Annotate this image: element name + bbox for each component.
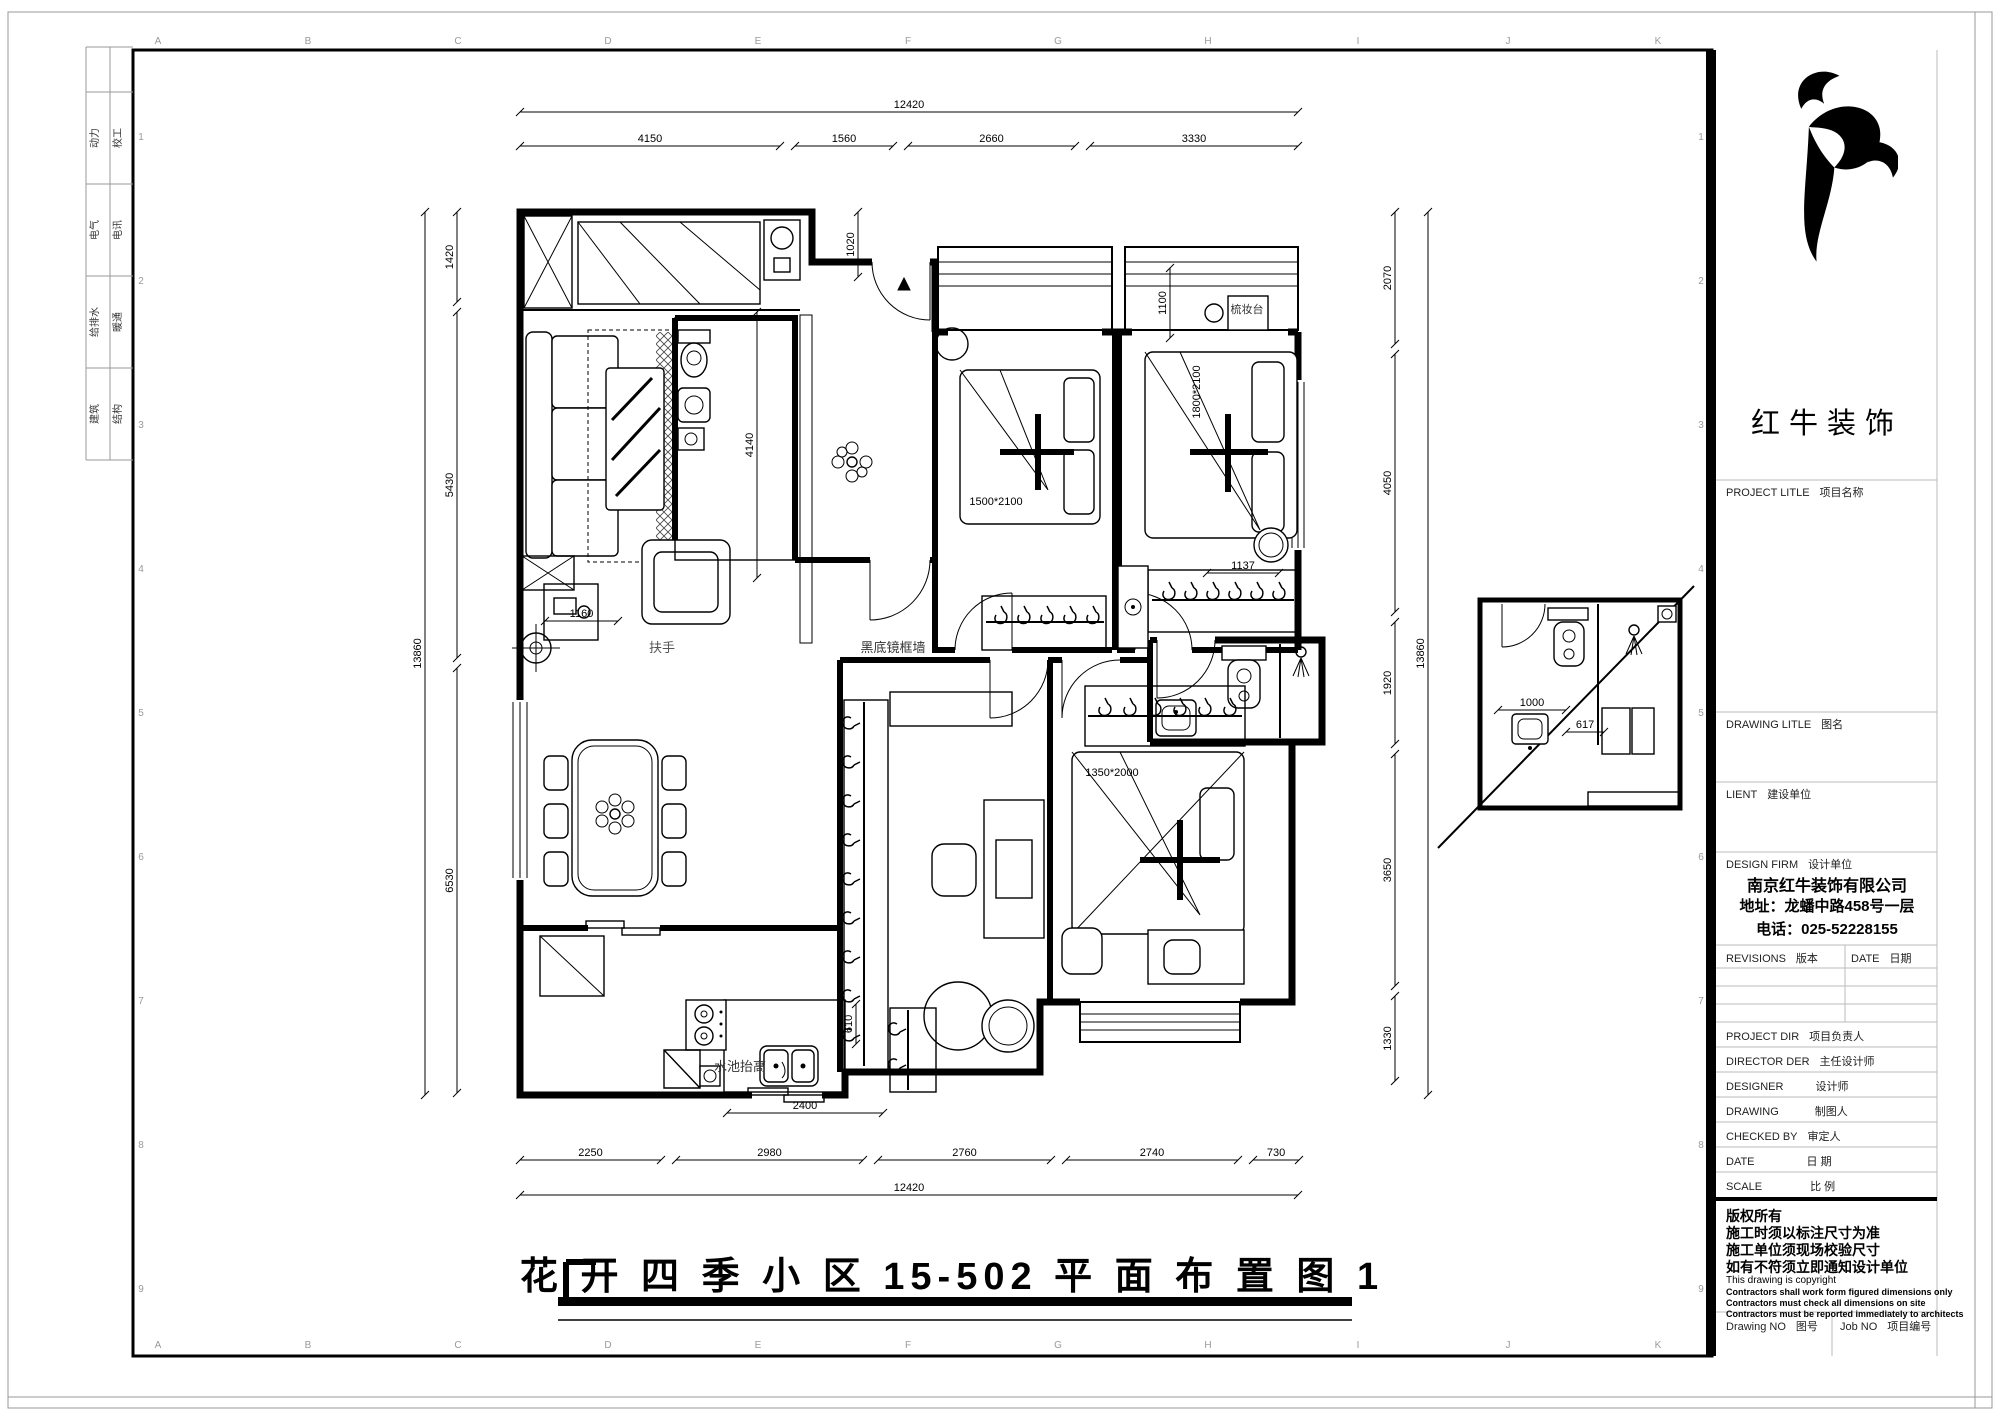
svg-text:B: B xyxy=(305,36,312,47)
round-rug-striped xyxy=(924,982,992,1050)
svg-text:K: K xyxy=(1655,36,1662,47)
coffee-table-mirror xyxy=(606,368,664,510)
svg-text:1137: 1137 xyxy=(1231,560,1255,572)
svg-text:2400: 2400 xyxy=(793,1100,817,1112)
svg-text:1100: 1100 xyxy=(1157,291,1169,315)
toilet-tank xyxy=(1222,646,1266,660)
svg-text:D: D xyxy=(604,1340,611,1351)
svg-text:梳妆台: 梳妆台 xyxy=(1231,302,1264,316)
chair-d1 xyxy=(1062,928,1102,974)
svg-text:1330: 1330 xyxy=(1382,1026,1394,1050)
sheet-frame xyxy=(8,12,1992,1408)
svg-text:12420: 12420 xyxy=(894,99,925,111)
svg-text:6: 6 xyxy=(1698,852,1704,863)
svg-text:K: K xyxy=(1655,1340,1662,1351)
svg-text:2: 2 xyxy=(138,276,144,287)
svg-text:F: F xyxy=(905,1340,911,1351)
entry-door xyxy=(872,262,930,320)
armchair xyxy=(642,540,730,624)
svg-text:2250: 2250 xyxy=(578,1147,602,1159)
storage-cabinet xyxy=(524,216,800,308)
stool-striped xyxy=(936,328,968,360)
svg-text:C: C xyxy=(454,36,461,47)
floor-plan-canvas: 1242041501560266033302250298027602740730… xyxy=(0,0,2000,1420)
discipline-strip xyxy=(86,47,133,460)
field-designer: DESIGNER设计师 xyxy=(1726,1078,1931,1094)
svg-text:3: 3 xyxy=(1698,420,1704,431)
svg-text:2: 2 xyxy=(1698,276,1704,287)
svg-text:13860: 13860 xyxy=(412,638,424,669)
field-rev-date: DATE日期 xyxy=(1851,950,1935,966)
copyright-line-en: This drawing is copyright xyxy=(1726,1275,1926,1286)
svg-text:黑底镜框墙: 黑底镜框墙 xyxy=(860,640,925,655)
svg-text:4150: 4150 xyxy=(638,133,662,145)
field-client: LIENT建设单位 xyxy=(1726,786,1931,802)
svg-text:B: B xyxy=(305,1340,312,1351)
svg-text:1560: 1560 xyxy=(832,133,856,145)
company-address: 地址：龙蟠中路458号一层 xyxy=(1720,895,1934,916)
svg-text:H: H xyxy=(1204,36,1211,47)
svg-text:F: F xyxy=(905,36,911,47)
svg-text:A: A xyxy=(155,1340,162,1351)
svg-text:电气: 电气 xyxy=(88,220,101,240)
master-bath xyxy=(1156,644,1309,738)
corner-cabinet xyxy=(664,1050,700,1088)
field-drawing-title: DRAWING LITLE图名 xyxy=(1726,716,1931,732)
cabinet-hatched xyxy=(890,692,1012,726)
svg-text:3650: 3650 xyxy=(1382,858,1394,882)
svg-text:1: 1 xyxy=(1698,132,1704,143)
detail-shower-head-icon xyxy=(1626,625,1642,655)
logo-text: 红牛装饰 xyxy=(1720,400,1934,442)
svg-text:4140: 4140 xyxy=(744,433,756,457)
svg-text:5430: 5430 xyxy=(444,473,456,497)
kitchen-sink xyxy=(760,1046,818,1086)
svg-text:A: A xyxy=(155,36,162,47)
svg-text:5: 5 xyxy=(138,708,144,719)
svg-text:G: G xyxy=(1054,36,1062,47)
field-project-title: PROJECT LITLE项目名称 xyxy=(1726,484,1931,500)
feature-wall-hatch xyxy=(800,315,812,643)
svg-text:617: 617 xyxy=(1576,719,1594,731)
detail-washer xyxy=(1602,708,1630,754)
svg-text:2660: 2660 xyxy=(979,133,1003,145)
svg-text:7: 7 xyxy=(1698,996,1704,1007)
svg-text:电讯: 电讯 xyxy=(111,220,124,240)
svg-text:1420: 1420 xyxy=(444,245,456,269)
svg-text:4: 4 xyxy=(138,564,144,575)
bedroom-d xyxy=(1062,686,1245,984)
drawing-sheet: { "sheet": { "title": "花 开 四 季 小 区 15-50… xyxy=(0,0,2000,1420)
svg-text:建筑: 建筑 xyxy=(88,404,101,424)
bay-window-bedroom-a xyxy=(938,247,1112,330)
svg-text:4: 4 xyxy=(1698,564,1704,575)
svg-text:5: 5 xyxy=(1698,708,1704,719)
bath-detail-drawing xyxy=(1438,586,1694,848)
kitchen xyxy=(540,936,845,1092)
svg-text:9: 9 xyxy=(138,1284,144,1295)
study-door xyxy=(990,660,1048,718)
toilet-entry-bath xyxy=(678,330,710,377)
svg-text:13860: 13860 xyxy=(1415,638,1427,669)
field-job-no: Job NO项目编号 xyxy=(1840,1318,1935,1334)
svg-text:2070: 2070 xyxy=(1382,266,1394,290)
svg-text:J: J xyxy=(1506,1340,1511,1351)
svg-text:1920: 1920 xyxy=(1382,671,1394,695)
desk xyxy=(984,800,1044,938)
svg-text:E: E xyxy=(755,36,762,47)
svg-text:结构: 结构 xyxy=(111,404,124,424)
bedroom-a xyxy=(936,328,1106,650)
hall-door xyxy=(870,560,930,620)
copyright-line-en: Contractors shall work form figured dime… xyxy=(1726,1287,1926,1297)
svg-text:D: D xyxy=(604,36,611,47)
bay-window-bedroom-d xyxy=(1080,1002,1240,1042)
svg-text:7: 7 xyxy=(138,996,144,1007)
svg-text:2740: 2740 xyxy=(1140,1147,1164,1159)
svg-text:校工: 校工 xyxy=(111,128,124,148)
field-project-dir: PROJECT DIR项目负责人 xyxy=(1726,1028,1931,1044)
svg-text:4050: 4050 xyxy=(1382,471,1394,495)
svg-text:1: 1 xyxy=(138,132,144,143)
svg-text:9: 9 xyxy=(1698,1284,1704,1295)
desk-chair xyxy=(932,844,976,896)
svg-text:1020: 1020 xyxy=(845,232,857,256)
svg-text:暖通: 暖通 xyxy=(111,312,124,332)
svg-text:8: 8 xyxy=(1698,1140,1704,1151)
sink-entry-bath xyxy=(678,388,710,450)
svg-text:动力: 动力 xyxy=(88,128,101,148)
svg-text:1160: 1160 xyxy=(570,608,594,620)
sofa xyxy=(526,332,618,558)
svg-text:1350*2000: 1350*2000 xyxy=(1085,767,1138,779)
svg-text:J: J xyxy=(1506,36,1511,47)
copyright-line-en: Contractors must check all dimensions on… xyxy=(1726,1298,1926,1308)
copyright-line: 如有不符须立即通知设计单位 xyxy=(1726,1257,1926,1277)
desk-d xyxy=(1148,930,1244,984)
detail-door xyxy=(1502,604,1545,647)
stove xyxy=(686,1000,726,1050)
svg-text:1500*2100: 1500*2100 xyxy=(969,496,1022,508)
titleblock-divider-bar xyxy=(1706,50,1716,1356)
logo xyxy=(1758,68,1898,328)
svg-text:I: I xyxy=(1357,1340,1360,1351)
shower-head-icon xyxy=(1293,647,1309,677)
svg-text:1800*2100: 1800*2100 xyxy=(1191,365,1203,418)
svg-text:H: H xyxy=(1204,1340,1211,1351)
svg-text:610: 610 xyxy=(843,1015,855,1033)
field-drawing-person: DRAWING制图人 xyxy=(1726,1103,1931,1119)
svg-text:2980: 2980 xyxy=(757,1147,781,1159)
grid-reference-marks: AABBCCDDEEFFGGHHIIJJKK112233445566778899… xyxy=(88,36,1704,1351)
svg-text:12420: 12420 xyxy=(894,1182,925,1194)
company-name: 南京红牛装饰有限公司 xyxy=(1720,872,1934,896)
field-director: DIRECTOR DER主任设计师 xyxy=(1726,1053,1931,1069)
svg-text:1000: 1000 xyxy=(1520,697,1544,709)
svg-text:6530: 6530 xyxy=(444,868,456,892)
svg-text:水池抬高: 水池抬高 xyxy=(714,1059,766,1074)
svg-text:I: I xyxy=(1357,36,1360,47)
svg-text:3: 3 xyxy=(138,420,144,431)
svg-text:给排水: 给排水 xyxy=(88,307,101,337)
svg-text:3330: 3330 xyxy=(1182,133,1206,145)
svg-text:E: E xyxy=(755,1340,762,1351)
entry-marker-icon xyxy=(898,278,910,290)
svg-text:6: 6 xyxy=(138,852,144,863)
bull-swoosh-icon xyxy=(1758,68,1898,328)
laundry-basket xyxy=(982,1000,1034,1052)
bay-window-bedroom-b xyxy=(1125,247,1298,330)
field-checked-by: CHECKED BY审定人 xyxy=(1726,1128,1931,1144)
company-phone: 电话：025-52228155 xyxy=(1720,918,1934,939)
svg-text:C: C xyxy=(454,1340,461,1351)
dining-table xyxy=(572,740,658,896)
field-design-firm: DESIGN FIRM设计单位 xyxy=(1726,856,1931,872)
svg-text:扶手: 扶手 xyxy=(649,640,675,655)
study xyxy=(844,692,1044,1092)
svg-text:730: 730 xyxy=(1267,1147,1285,1159)
svg-text:2760: 2760 xyxy=(952,1147,976,1159)
svg-text:8: 8 xyxy=(138,1140,144,1151)
svg-text:G: G xyxy=(1054,1340,1062,1351)
svg-text:花 开 四 季 小 区 15-502 平 面 布 置 图 1: 花 开 四 季 小 区 15-502 平 面 布 置 图 1 xyxy=(520,1256,1384,1298)
field-scale: SCALE比 例 xyxy=(1726,1178,1931,1194)
field-date: DATE日 期 xyxy=(1726,1153,1931,1169)
flower-icon xyxy=(832,442,872,482)
window-left-wall xyxy=(513,702,527,878)
